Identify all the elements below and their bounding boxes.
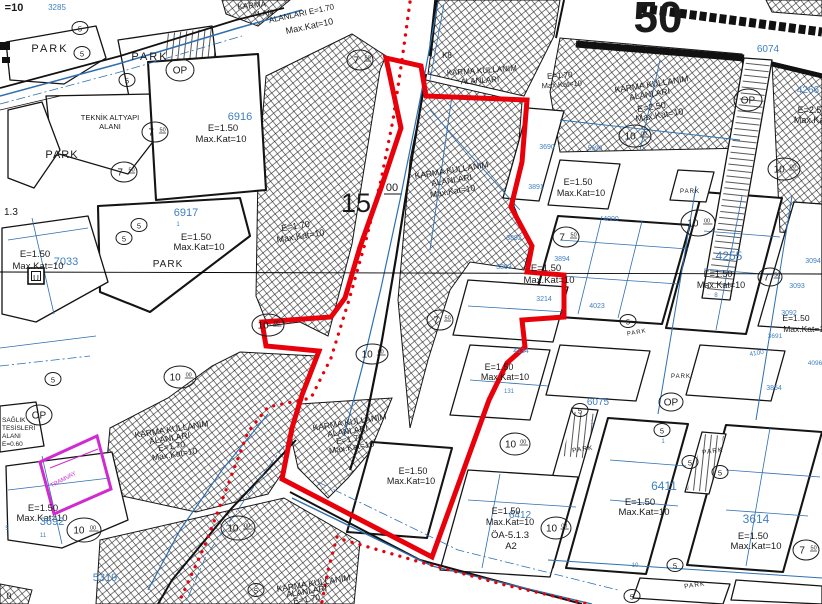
road-width-value: 10 <box>170 372 182 383</box>
road-width-decimals: 50 <box>365 56 371 62</box>
road-width-value: OP <box>664 397 679 408</box>
map-label: E=1.50 <box>704 269 733 279</box>
road-width-value: OP <box>32 410 47 421</box>
map-label: TESİSLERİ <box>2 423 35 432</box>
map-label: PARK <box>671 374 691 380</box>
road-width-value: 10 <box>687 218 699 229</box>
road-width-value: 10 <box>73 525 85 536</box>
road-width-value: 5 <box>51 375 55 384</box>
road-width-decimals: 00 <box>790 165 796 171</box>
road-width-value: 7 <box>764 272 770 283</box>
map-label: Max.Kat=10 <box>196 134 247 145</box>
map-label: E=2.50 <box>798 105 822 115</box>
road-width-decimals: 00 <box>378 350 384 356</box>
road-width-value: 5 <box>660 426 664 435</box>
map-label: PARK <box>45 149 78 161</box>
map-label: PARK <box>680 189 700 195</box>
map-label: PARK <box>627 328 648 337</box>
road-width-value: 10 <box>625 131 637 142</box>
road-width-value: 10 <box>774 164 786 175</box>
road-width-decimals: 00 <box>274 321 280 327</box>
map-label: 15 <box>341 188 371 218</box>
road-width-circle: 1000 <box>356 344 388 364</box>
road-width-value: 10 <box>258 320 270 331</box>
map-label: Max.Kat=10 <box>481 372 529 382</box>
road-width-decimals: 00 <box>90 526 96 532</box>
map-label: 3891 <box>528 184 544 191</box>
map-label: E=1.50 <box>485 362 514 372</box>
road-width-value: 7 <box>353 55 359 66</box>
road-width-value: 5 <box>78 24 82 33</box>
map-label: 3894 <box>554 256 570 263</box>
road-width-decimals: 50 <box>811 546 817 552</box>
map-label: 4023 <box>589 303 605 310</box>
map-label: 3692 <box>40 516 64 528</box>
map-label: 6411 <box>651 479 677 493</box>
map-label: 3094 <box>805 258 821 265</box>
road-width-decimals: 50 <box>445 316 451 322</box>
map-label: E=0.60 <box>2 441 23 448</box>
road-width-value: OP <box>741 95 756 106</box>
map-label: 4134 <box>513 348 529 355</box>
map-label: SAĞLIK <box>2 415 26 424</box>
map-label: ALANI <box>99 122 121 131</box>
road-width-value: 5 <box>137 221 141 230</box>
road-width-value: 7 <box>559 232 565 243</box>
map-label: E=1.50 <box>531 263 561 274</box>
road-width-value: 10 <box>505 439 517 450</box>
map-label: Max.Kat=10 <box>387 476 435 486</box>
map-label: K8 <box>442 51 452 60</box>
road-width-circle: 1000 <box>500 433 530 455</box>
map-label: 3690 <box>539 144 555 151</box>
map-label: U <box>33 274 39 283</box>
map-label: Max.Kat=10 <box>697 280 745 290</box>
road-width-value: 7 <box>117 167 123 178</box>
road-width-value: 5 <box>718 468 722 477</box>
map-label: Max.Kat=10 <box>174 242 225 253</box>
road-width-decimals: 50 <box>571 233 577 239</box>
map-label: 50 <box>634 0 683 42</box>
map-label: Max.Kat=10 <box>783 324 822 334</box>
map-label: 11 <box>40 533 47 539</box>
map-label: 6917 <box>174 207 198 219</box>
map-label: 00 <box>386 182 398 194</box>
road-width-circle: 5 <box>45 373 61 386</box>
map-label: Max.Kat=10 <box>524 275 575 286</box>
road-width-value: 5 <box>254 586 258 595</box>
map-label: 6074 <box>757 44 780 55</box>
road-width-circle: 1000 <box>164 366 196 388</box>
road-width-value: 10 <box>227 523 239 534</box>
map-label: E=1.50 <box>399 466 428 476</box>
map-label: =10 <box>5 2 24 14</box>
map-label: 3614 <box>743 512 770 526</box>
map-label: E=1.50 <box>492 506 521 516</box>
road-width-decimals: 00 <box>704 219 710 225</box>
road-width-decimals: 50 <box>129 168 135 174</box>
map-label: 3691 <box>768 333 783 340</box>
zoning-map: 555750750750OPOPOPOP10001000100010001000… <box>0 0 822 604</box>
road-width-circle: 5 <box>667 559 683 572</box>
map-label: A2 <box>505 541 517 552</box>
map-label: 5690 <box>588 145 603 152</box>
map-label: 10 <box>632 563 639 569</box>
zoning-map-page: 555750750750OPOPOPOP10001000100010001000… <box>0 0 822 604</box>
map-label: 4096 <box>808 360 822 367</box>
map-label: Max.Kat=10 <box>557 188 605 198</box>
map-label: E=1.50 <box>782 313 809 323</box>
map-label: ÖA-5.1.3 <box>491 530 529 541</box>
road-width-value: 5 <box>80 49 84 58</box>
map-label: Max.Kat=10 <box>13 261 64 272</box>
road-width-value: 7 <box>799 545 805 556</box>
road-width-value: 5 <box>125 76 129 85</box>
road-width-decimals: 00 <box>244 524 250 530</box>
map-label: Max.Kat=10 <box>794 115 822 125</box>
road-width-value: OP <box>173 65 188 76</box>
road-width-decimals: 00 <box>520 440 526 446</box>
road-width-circle: OP <box>659 393 683 411</box>
map-label: 3893 <box>496 264 512 271</box>
road-width-decimals: 50 <box>774 273 780 279</box>
road-width-value: 10 <box>362 349 374 360</box>
road-width-circle: 750 <box>793 540 819 560</box>
map-label: 6075 <box>587 397 610 408</box>
map-label: 4000 <box>603 216 619 223</box>
road-width-value: 5 <box>626 317 630 326</box>
map-label: PARK <box>153 259 184 270</box>
road-width-value: 5 <box>578 406 582 415</box>
road-width-value: 5 <box>673 561 677 570</box>
map-label: ALANI <box>2 433 21 440</box>
map-label: 4266 <box>797 85 820 96</box>
road-width-value: 7 <box>148 127 154 138</box>
map-label: 3285 <box>48 3 66 12</box>
map-label: TEKNİK ALTYAPI <box>81 113 140 122</box>
road-width-decimals: 00 <box>561 524 567 530</box>
map-label: 3093 <box>789 283 805 290</box>
map-label: E=1.50 <box>20 249 50 260</box>
map-label: E=1.50 <box>564 177 593 187</box>
map-label: PARK <box>131 51 168 63</box>
map-label: 131 <box>504 389 515 395</box>
map-label: 3854 <box>766 385 782 392</box>
map-label: 4255 <box>716 249 743 263</box>
road-width-value: 10 <box>546 523 558 534</box>
map-label: 3214 <box>536 296 552 303</box>
road-width-value: 7 <box>433 315 439 326</box>
road-width-value: 5 <box>630 592 634 601</box>
map-label: Max.Kat=10 <box>731 541 782 552</box>
map-label: Max.Kat=10 <box>619 507 670 518</box>
road-width-decimals: 50 <box>160 128 166 134</box>
map-label: 5319 <box>93 572 117 584</box>
map-label: 3892 <box>506 235 522 242</box>
road-width-value: 5 <box>688 458 692 467</box>
road-width-decimals: 00 <box>641 132 647 138</box>
map-label: 0 <box>6 591 11 601</box>
map-label: 6916 <box>228 111 252 123</box>
map-label: E=1.50 <box>208 123 238 134</box>
map-label: 1.3 <box>4 207 18 218</box>
map-label: PARK <box>31 43 68 55</box>
map-label: Max.Kat=10 <box>486 517 534 527</box>
road-width-value: 5 <box>122 234 126 243</box>
road-width-decimals: 00 <box>186 373 192 379</box>
